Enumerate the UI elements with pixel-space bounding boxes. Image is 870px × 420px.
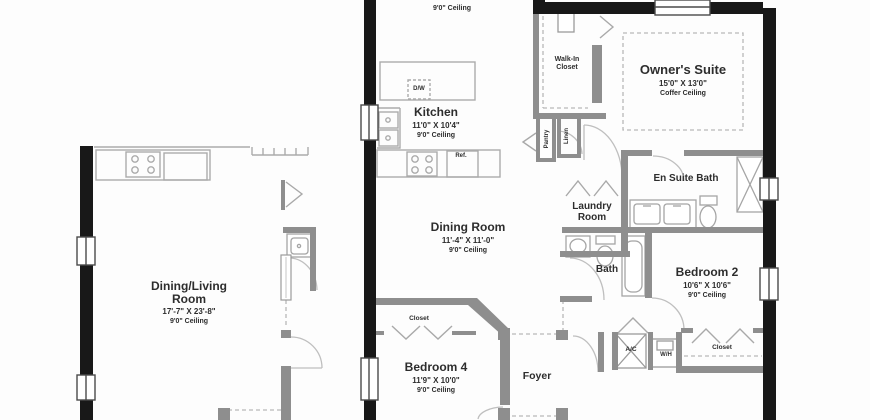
bedroom2-door-arc [652, 298, 684, 330]
label-dishwasher: D/W [413, 86, 425, 92]
label-closet-bedroom2: Closet [712, 344, 732, 351]
laundry-door-chevron [566, 181, 590, 196]
ac-closet-chevron [618, 318, 648, 333]
label-water-heater: W/H [660, 352, 672, 358]
room-label-foyer: Foyer [523, 371, 552, 382]
left-unit-hall-chevron [286, 182, 302, 207]
cased-opening [281, 255, 291, 300]
top-room-dims-partial: 15'8" X 15'4" [428, 0, 476, 1]
pantry-door-chevron [523, 133, 536, 151]
toilet-bowl [700, 206, 716, 228]
left-unit-bath-fixtures [287, 234, 312, 257]
room-label-owners-suite: Owner's Suite 15'0" X 13'0" Coffer Ceili… [640, 63, 726, 97]
label-linen: Linen [564, 128, 570, 144]
room-label-laundry: Laundry Room [572, 202, 611, 224]
left-unit-kitchen-casework [94, 147, 308, 180]
room-label-walk-in-closet: Walk-In Closet [555, 56, 580, 71]
room-label-bath: Bath [596, 265, 618, 276]
room-label-bedroom2: Bedroom 2 10'6" X 10'6" 9'0" Ceiling [676, 266, 739, 299]
room-label-dining-room: Dining Room 11'-4" X 11'-0" 9'0" Ceiling [431, 221, 506, 254]
walkin-dresser [558, 12, 574, 32]
room-label-kitchen: Kitchen 11'0" X 10'4" 9'0" Ceiling [412, 106, 459, 139]
bedroom4-closet-chevron-2 [424, 326, 452, 339]
ensuite-fixtures [630, 157, 763, 228]
label-refrigerator: Ref. [455, 153, 466, 159]
bedroom4-closet-chevron [392, 326, 420, 339]
toilet-tank [700, 196, 717, 205]
owners-suite-door-arc [584, 125, 622, 177]
bedroom2-closet-chevron-2 [726, 329, 754, 343]
walkin-closet-door-chevron [600, 16, 613, 38]
room-label-bedroom4: Bedroom 4 11'9" X 10'0" 9'0" Ceiling [405, 361, 468, 394]
bedroom2-closet-chevron [692, 329, 720, 343]
laundry-door-chevron-2 [594, 181, 618, 196]
foyer-side-door-arc [573, 336, 598, 372]
left-unit-door-arc [291, 337, 322, 368]
floor-plan-drawing [0, 0, 870, 420]
label-pantry: Pantry [544, 130, 550, 149]
room-label-dining-living: Dining/Living Room 17'-7" X 23'-8" 9'0" … [151, 280, 227, 325]
floor-plan: 15'8" X 15'4" 9'0" Ceiling Kitchen 11'0"… [0, 0, 870, 420]
room-label-ensuite-bath: En Suite Bath [653, 174, 718, 185]
label-ac: A/C [625, 346, 636, 353]
label-closet-bedroom4: Closet [409, 315, 429, 322]
top-room-ceiling: 9'0" Ceiling [433, 5, 471, 13]
